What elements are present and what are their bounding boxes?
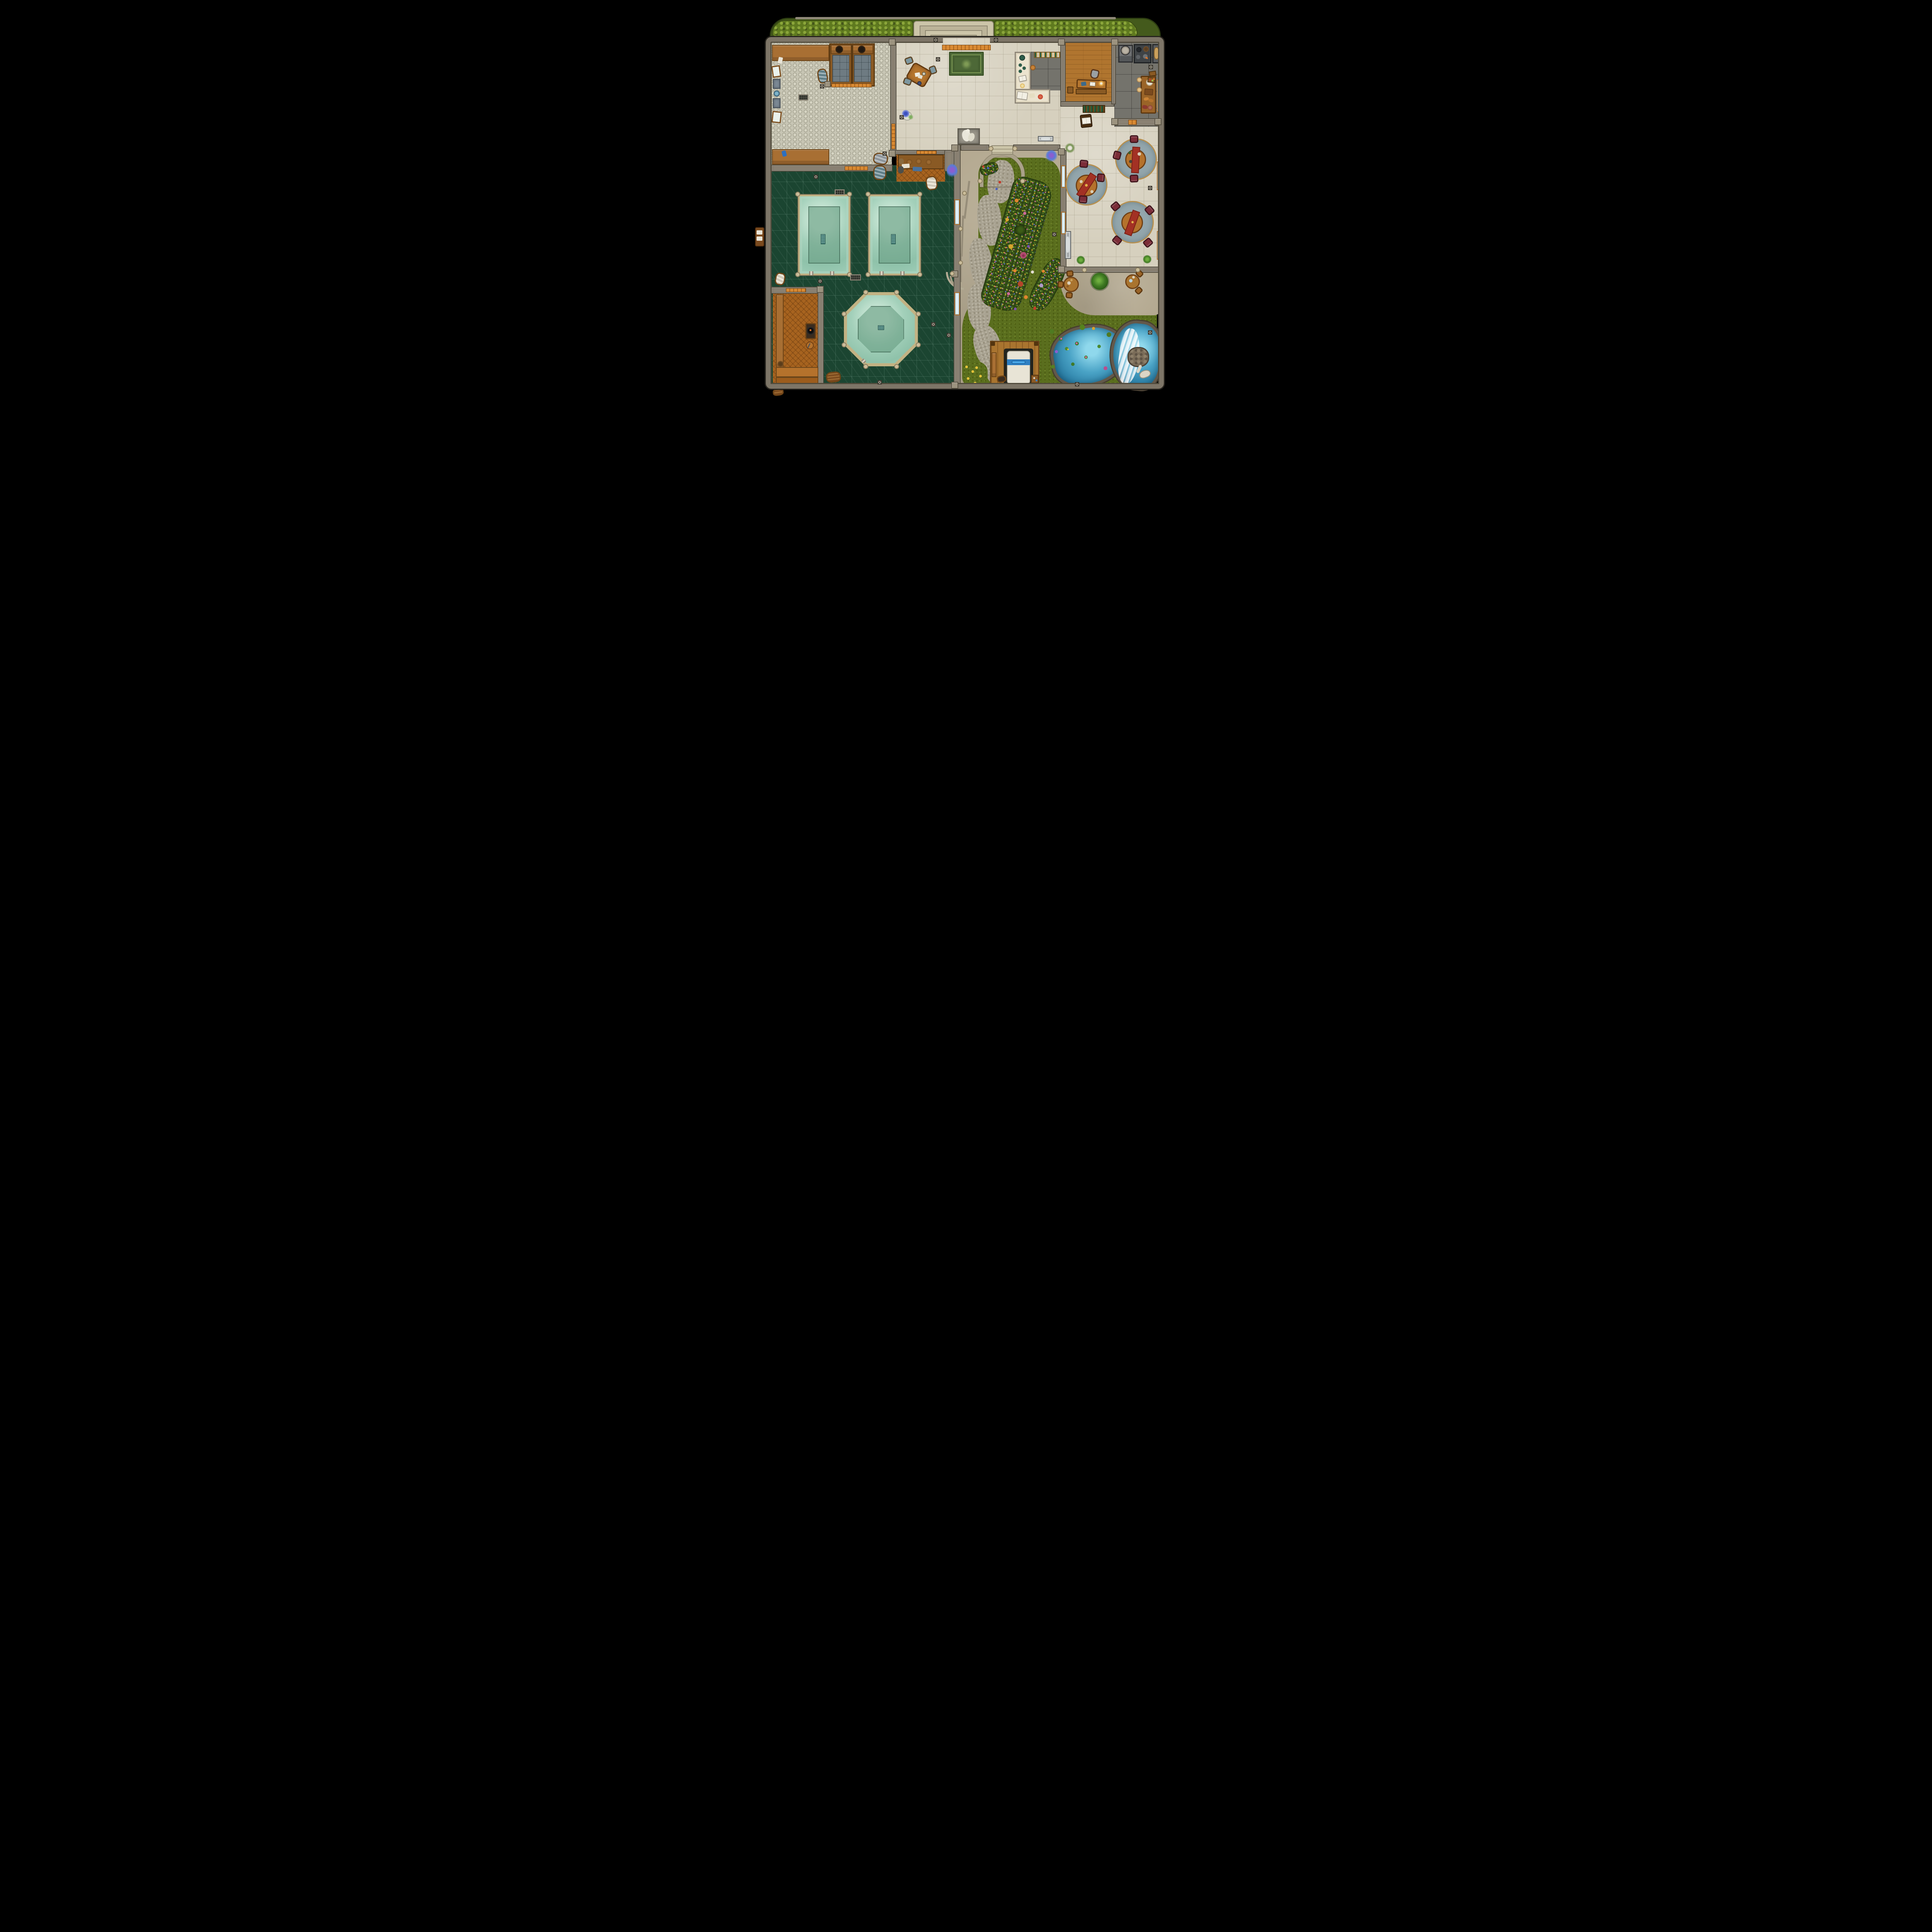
wall-sconce [1148, 186, 1152, 190]
wall-pillar [889, 150, 896, 157]
wall-knob [978, 179, 983, 184]
wall-sconce [883, 151, 887, 156]
building-wall-frame [766, 37, 1164, 389]
wall-pillar [889, 39, 896, 46]
rooftop-hedge-right [994, 20, 1138, 37]
wall-pillar [1058, 148, 1065, 155]
wall-knob [1135, 267, 1140, 272]
wall-sconce [820, 84, 824, 88]
wall-sconce [878, 380, 882, 384]
folded-towels [757, 230, 762, 235]
wall-knob [1020, 179, 1025, 184]
wall-sconce [900, 115, 904, 119]
basket-outside-sauna [772, 388, 784, 396]
wall-knob [1012, 146, 1017, 151]
wall-pillar [1058, 39, 1065, 46]
wall-knob [962, 191, 967, 196]
wall-sconce [994, 38, 998, 42]
wall-pillar [951, 382, 958, 389]
wall-pillar [1058, 266, 1065, 273]
wall-knob [958, 260, 963, 265]
wall-sconce [934, 38, 938, 42]
wall-sconce [1052, 232, 1056, 236]
wall-sconce [947, 333, 951, 337]
wall-sconce [1148, 330, 1152, 335]
wall-pillar [951, 145, 958, 151]
screenshot-page [749, 0, 1184, 411]
wall-sconce [1075, 382, 1079, 386]
battle-map-canvas[interactable] [749, 0, 1184, 411]
wall-sconce [936, 57, 940, 61]
wall-sconce [814, 175, 818, 179]
wall-pillar [1155, 118, 1162, 125]
wall-knob [950, 271, 954, 276]
wall-knob [1082, 267, 1087, 272]
wall-pillar [1111, 118, 1118, 125]
wall-pillar [1111, 39, 1118, 46]
wall-pillar [817, 286, 824, 293]
stone-edging-top [795, 17, 1116, 19]
wall-sconce [931, 322, 935, 327]
folded-towels [757, 236, 762, 241]
wall-knob [988, 146, 993, 151]
wall-knob [958, 226, 963, 231]
wall-sconce [818, 279, 822, 283]
rooftop-hedge-left [772, 20, 913, 37]
wall-sconce [1149, 65, 1153, 69]
entrance-runner [942, 45, 991, 50]
